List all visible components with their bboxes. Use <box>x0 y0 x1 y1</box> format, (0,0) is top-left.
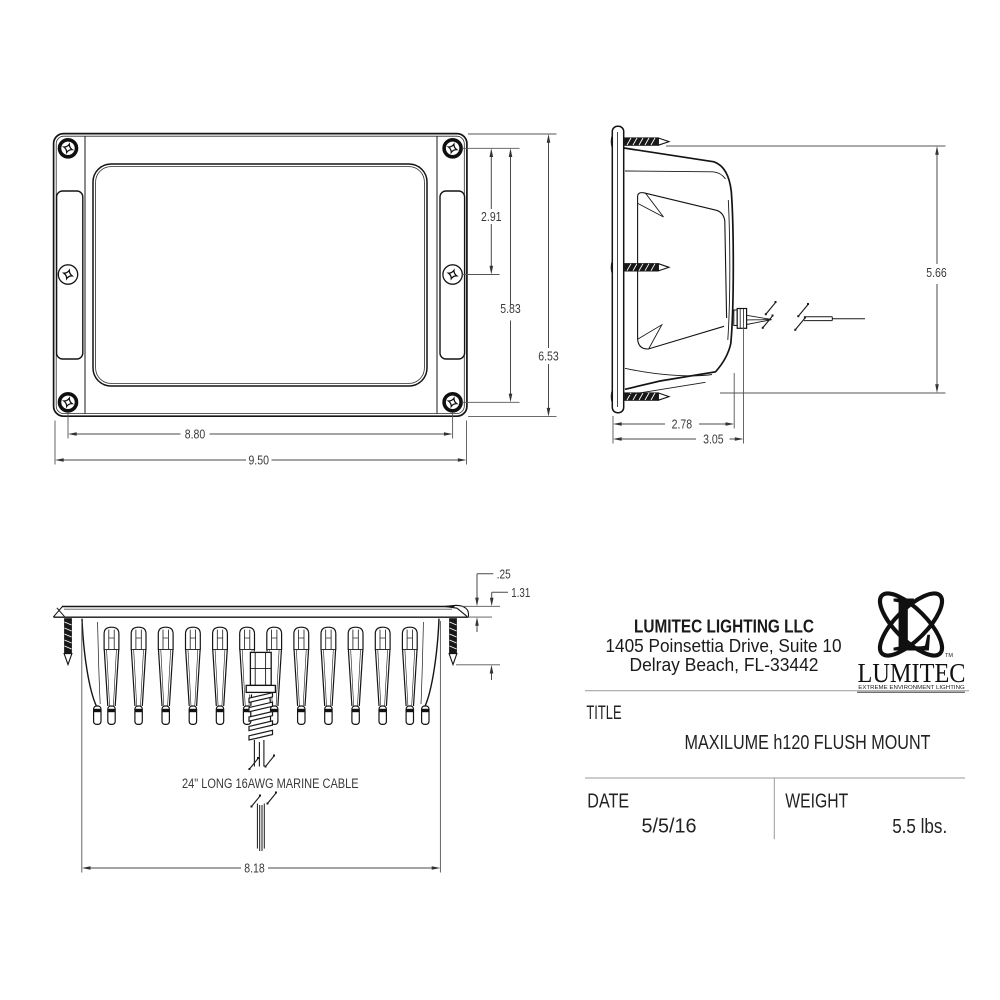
svg-text:5.66: 5.66 <box>926 265 947 280</box>
svg-text:6.53: 6.53 <box>538 349 559 364</box>
svg-text:9.50: 9.50 <box>248 453 269 468</box>
svg-text:2.91: 2.91 <box>481 209 502 224</box>
svg-text:MAXILUME h120 FLUSH MOUNT: MAXILUME h120 FLUSH MOUNT <box>685 732 931 754</box>
svg-text:L: L <box>893 581 933 669</box>
svg-text:LUMITEC LIGHTING LLC: LUMITEC LIGHTING LLC <box>634 616 814 637</box>
svg-text:8.18: 8.18 <box>244 861 265 876</box>
svg-text:5.83: 5.83 <box>500 301 521 316</box>
svg-text:DATE: DATE <box>587 791 629 813</box>
svg-text:.25: .25 <box>497 567 511 582</box>
svg-text:LUMITEC: LUMITEC <box>858 658 966 688</box>
svg-text:24" LONG 16AWG MARINE CABLE: 24" LONG 16AWG MARINE CABLE <box>182 776 359 791</box>
svg-text:8.80: 8.80 <box>185 427 206 442</box>
svg-text:EXTREME ENVIRONMENT LIGHTING: EXTREME ENVIRONMENT LIGHTING <box>858 685 965 691</box>
svg-text:1405 Poinsettia Drive, Suite 1: 1405 Poinsettia Drive, Suite 10 <box>606 635 842 656</box>
svg-text:5.5 lbs.: 5.5 lbs. <box>892 816 947 838</box>
svg-text:Delray Beach, FL-33442: Delray Beach, FL-33442 <box>630 654 819 675</box>
svg-text:WEIGHT: WEIGHT <box>785 791 848 813</box>
svg-text:TITLE: TITLE <box>586 703 621 724</box>
svg-text:1.31: 1.31 <box>511 585 530 600</box>
svg-text:5/5/16: 5/5/16 <box>642 816 697 838</box>
svg-text:3.05: 3.05 <box>703 431 724 446</box>
svg-text:2.78: 2.78 <box>672 416 693 431</box>
